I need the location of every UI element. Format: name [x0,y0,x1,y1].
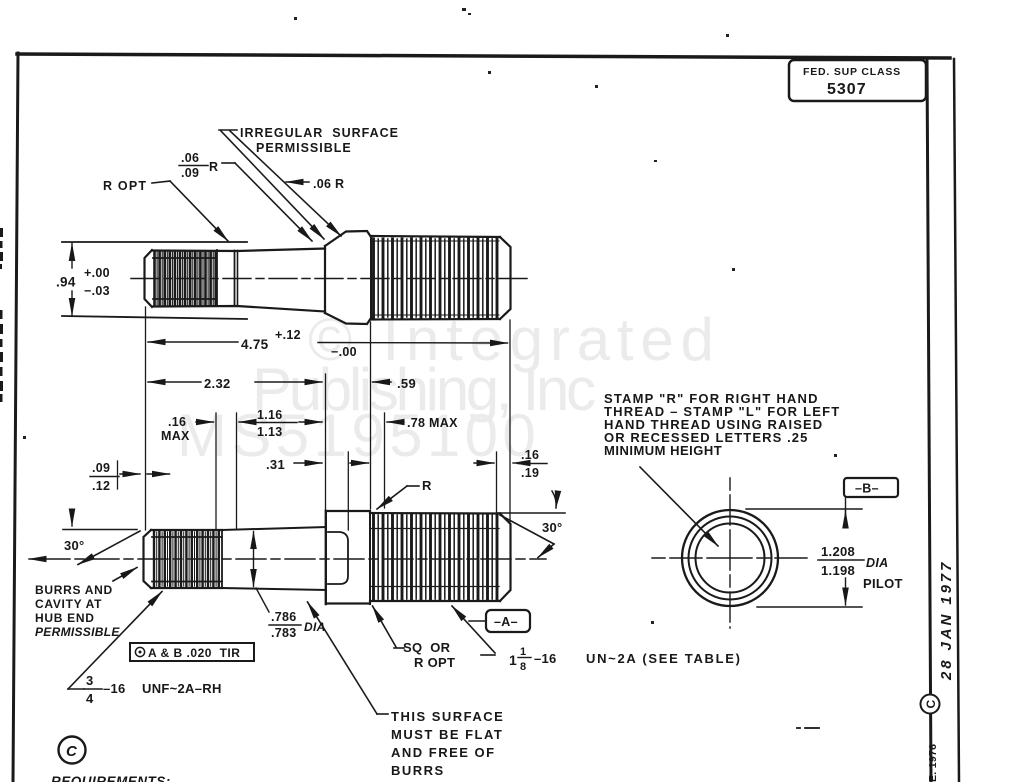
svg-text:−.00: −.00 [331,345,357,359]
svg-text:.786: .786 [271,610,297,624]
svg-text:SQ OR: SQ OR [403,640,451,655]
svg-text:–16: –16 [534,651,557,666]
svg-text:30°: 30° [64,538,85,553]
svg-text:30°: 30° [542,520,563,535]
svg-text:4.75: 4.75 [241,337,269,352]
svg-text:28 JAN 1977: 28 JAN 1977 [938,560,955,681]
svg-text:5307: 5307 [827,81,867,98]
svg-text:MAX: MAX [161,429,190,443]
svg-text:MS5195100: MS5195100 [177,402,540,469]
svg-text:1: 1 [520,646,526,658]
svg-text:E. 1976: E. 1976 [927,744,939,782]
svg-text:UNF~2A–RH: UNF~2A–RH [142,681,222,696]
svg-text:−.03: −.03 [84,284,110,298]
svg-text:.59: .59 [397,376,416,391]
svg-text:AND FREE OF: AND FREE OF [391,745,496,760]
svg-text:MUST BE FLAT: MUST BE FLAT [391,727,503,742]
svg-text:8: 8 [520,661,526,673]
svg-text:R: R [422,478,432,493]
svg-text:.09: .09 [92,461,110,475]
svg-text:–B–: –B– [855,482,879,496]
svg-text:HUB END: HUB END [35,611,95,625]
svg-text:PERMISSIBLE: PERMISSIBLE [256,141,352,155]
svg-text:1.13: 1.13 [257,425,283,439]
svg-text:PILOT: PILOT [863,576,903,591]
svg-text:DIA: DIA [866,556,888,570]
svg-text:A & B .020 TIR: A & B .020 TIR [148,646,240,660]
svg-text:1.208: 1.208 [821,544,855,559]
svg-text:1.16: 1.16 [257,408,283,422]
svg-text:BURRS: BURRS [391,763,445,778]
svg-text:.09: .09 [181,166,199,180]
svg-text:MINIMUM HEIGHT: MINIMUM HEIGHT [604,443,722,458]
svg-text:BURRS AND: BURRS AND [35,583,113,597]
svg-text:.12: .12 [92,479,110,493]
svg-text:4: 4 [86,691,94,706]
svg-text:.06: .06 [181,151,199,165]
svg-text:+.12: +.12 [275,328,301,342]
svg-text:IRREGULAR SURFACE: IRREGULAR SURFACE [240,126,399,140]
svg-text:2.32: 2.32 [204,376,231,391]
svg-text:C: C [924,700,938,709]
svg-text:1: 1 [509,652,517,668]
svg-text:C: C [66,743,78,760]
svg-text:1.198: 1.198 [821,563,855,578]
svg-text:+.00: +.00 [84,266,110,280]
svg-text:.06 R: .06 R [313,177,344,191]
svg-text:THIS SURFACE: THIS SURFACE [391,709,504,724]
svg-text:.19: .19 [521,466,539,480]
svg-text:R OPT: R OPT [414,655,455,670]
svg-text:.16: .16 [521,448,539,462]
svg-text:.78 MAX: .78 MAX [407,416,458,430]
svg-text:.16: .16 [168,415,186,429]
svg-text:.783: .783 [271,626,297,640]
svg-text:.31: .31 [266,457,285,472]
svg-text:–16: –16 [103,681,126,696]
svg-text:–A–: –A– [494,615,518,629]
svg-text:3: 3 [86,673,94,688]
svg-text:CAVITY AT: CAVITY AT [35,597,102,611]
svg-text:FED. SUP CLASS: FED. SUP CLASS [803,66,901,78]
svg-text:PERMISSIBLE: PERMISSIBLE [35,625,120,639]
svg-text:.94: .94 [56,275,76,290]
svg-text:REQUIREMENTS:: REQUIREMENTS: [51,774,171,782]
svg-text:UN~2A (SEE TABLE): UN~2A (SEE TABLE) [586,651,742,666]
svg-text:R: R [209,160,218,174]
svg-text:R OPT: R OPT [103,179,147,193]
